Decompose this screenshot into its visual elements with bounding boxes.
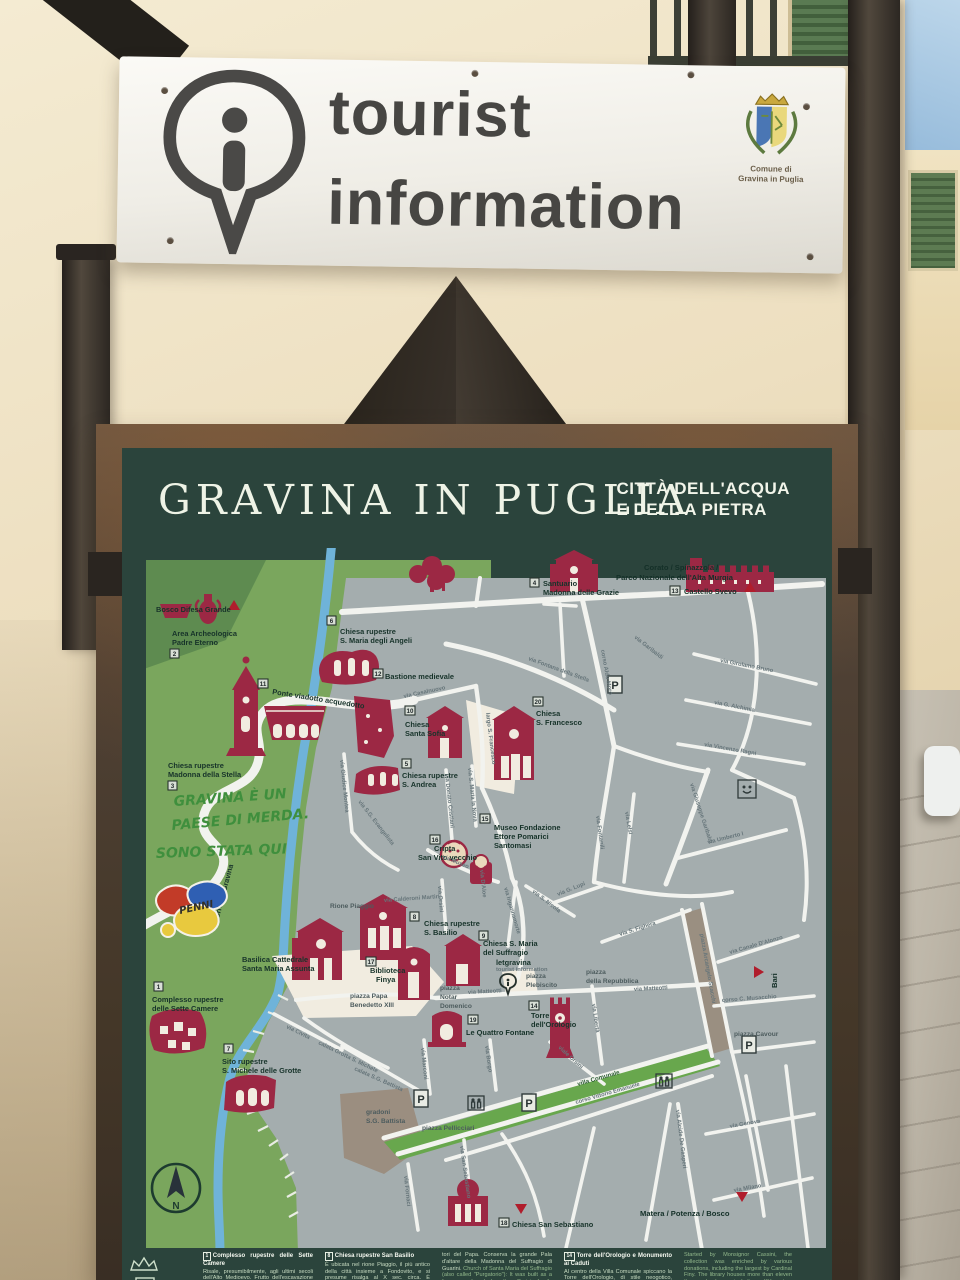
screw xyxy=(803,103,810,110)
legend-col-1: 1Complesso rupestre delle Sette Camere R… xyxy=(203,1252,313,1280)
label-sito-rupestre: Sito rupestre xyxy=(222,1057,268,1066)
info-pin-icon xyxy=(153,67,316,255)
label-sette-camere: Complesso rupestre xyxy=(152,995,223,1004)
label-rione-piaggio: Rione Piaggio xyxy=(330,903,374,910)
label-biblioteca: Biblioteca xyxy=(370,966,406,975)
svg-text:14: 14 xyxy=(531,1003,538,1010)
svg-text:P: P xyxy=(525,1098,532,1110)
san-francesco-church-icon xyxy=(492,706,536,780)
label-madonna-stella-2: Madonna della Stella xyxy=(168,770,242,779)
legend-icons xyxy=(128,1254,170,1280)
label-bastione: Bastione medievale xyxy=(385,672,454,681)
svg-text:5: 5 xyxy=(405,761,409,768)
graffiti: GRAVINA È UN PAESE DI MERDA. SONO STATA … xyxy=(156,785,310,862)
label-notar: piazza xyxy=(440,985,460,992)
sign-line-2: information xyxy=(327,158,686,254)
label-san-basilio: Chiesa rupestre xyxy=(424,919,480,928)
svg-text:15: 15 xyxy=(482,816,489,823)
parking-icon: P xyxy=(742,1036,756,1053)
green-shutter-door xyxy=(788,0,850,60)
sticker: PENNI xyxy=(156,881,227,937)
svg-text:4: 4 xyxy=(533,580,537,587)
map-title: GRAVINA IN PUGLIA xyxy=(158,476,691,524)
label-repubblica: piazza xyxy=(586,969,606,976)
svg-text:P: P xyxy=(745,1040,752,1052)
label-bari: Bari xyxy=(770,973,779,988)
svg-text:2: 2 xyxy=(173,651,177,658)
screw xyxy=(167,237,174,244)
svg-text:10: 10 xyxy=(407,708,414,715)
svg-text:18: 18 xyxy=(501,1220,508,1227)
san-michele-cave-icon xyxy=(224,1075,276,1113)
label-gradoni-2: S.G. Battista xyxy=(366,1118,406,1125)
svg-text:8: 8 xyxy=(413,914,417,921)
label-angeli: Chiesa rupestre xyxy=(340,627,396,636)
svg-text:20: 20 xyxy=(535,699,542,706)
sign-line-1: tourist xyxy=(328,68,687,164)
screw xyxy=(807,253,814,260)
svg-text:17: 17 xyxy=(368,959,375,966)
svg-text:11: 11 xyxy=(260,681,267,688)
svg-text:7: 7 xyxy=(227,1046,231,1053)
label-sette-camere-2: delle Sette Camere xyxy=(152,1004,218,1013)
board-bracket xyxy=(88,552,122,596)
quattro-fontane-icon xyxy=(428,1011,466,1047)
label-plebiscito: piazza xyxy=(526,973,546,980)
svg-text:12: 12 xyxy=(375,671,382,678)
label-santa-sofia: Chiesa xyxy=(405,720,430,729)
screw xyxy=(471,70,478,77)
label-santuario-2: Madonna delle Grazie xyxy=(543,588,619,597)
label-corato-2: Parco Nazionale dell'Alta Murgia xyxy=(616,573,734,582)
label-torre: Torre xyxy=(531,1011,549,1020)
label-torre-2: dell'Orologio xyxy=(531,1020,577,1029)
label-suffragio: Chiesa S. Maria xyxy=(483,939,539,948)
angeli-cave-icon xyxy=(319,650,379,685)
city-map: P P P P N 1 2 3 4 5 6 7 8 9 10 11 12 13 … xyxy=(146,548,826,1248)
label-matera: Matera / Potenza / Bosco xyxy=(640,1209,730,1218)
label-santuario: Santuario xyxy=(543,579,578,588)
label-basilica-2: Santa Maria Assunta xyxy=(242,964,315,973)
map-board-panel: GRAVINA IN PUGLIA CITTÀ DELL'ACQUAE DELL… xyxy=(122,448,832,1280)
label-plebiscito-2: Plebiscito xyxy=(526,982,557,989)
compass-north-label: N xyxy=(172,1201,179,1212)
sette-camere-cave-icon xyxy=(149,1009,206,1054)
label-biblioteca-2: Finya xyxy=(376,975,396,984)
label-museo: Museo Fondazione xyxy=(494,823,561,832)
tourist-information-sign: tourist information Comune diGravina in … xyxy=(116,56,845,273)
label-pellicciari: piazza Pellicciari xyxy=(422,1125,475,1132)
label-sito-rupestre-2: S. Michele delle Grotte xyxy=(222,1066,301,1075)
board-bracket xyxy=(838,548,872,594)
label-area-archeologica-2: Padre Eterno xyxy=(172,638,218,647)
legend-col-4: 14Torre dell'Orologio e Monumento ai Cad… xyxy=(564,1252,672,1280)
screw xyxy=(687,71,694,78)
label-area-archeologica: Area Archeologica xyxy=(172,629,238,638)
label-castello: Castello Svevo xyxy=(684,587,737,596)
parked-car xyxy=(924,746,960,816)
label-san-francesco: Chiesa xyxy=(536,709,561,718)
label-piazza-papa: piazza Papa xyxy=(350,993,388,1000)
label-museo-3: Santomasi xyxy=(494,841,531,850)
svg-text:13: 13 xyxy=(672,588,679,595)
svg-text:P: P xyxy=(417,1094,424,1106)
legend-col-3: tori del Papa. Conserva la grande Pala d… xyxy=(442,1252,552,1280)
label-cripta: Cripta xyxy=(434,844,456,853)
coat-of-arms-caption: Comune diGravina in Puglia xyxy=(716,164,826,186)
label-angeli-2: S. Maria degli Angeli xyxy=(340,636,412,645)
screw xyxy=(161,87,168,94)
label-notar-3: Domenico xyxy=(440,1003,472,1010)
crown-wall-icon xyxy=(131,1258,157,1270)
svg-text:1: 1 xyxy=(157,984,161,991)
legend-col-2: 8Chiesa rupestre San Basilio È ubicata n… xyxy=(325,1252,430,1280)
label-piazza-papa-2: Benedetto XIII xyxy=(350,1002,394,1009)
label-san-francesco-2: S. Francesco xyxy=(536,718,582,727)
svg-text:6: 6 xyxy=(330,618,334,625)
parking-icon: P xyxy=(414,1090,428,1107)
label-bosco: Bosco Difesa Grande xyxy=(156,605,231,614)
label-basilica: Basilica Cattedrale xyxy=(242,955,308,964)
label-madonna-stella: Chiesa rupestre xyxy=(168,761,224,770)
sign-post-top xyxy=(688,0,736,66)
label-museo-2: Ettore Pomarici xyxy=(494,832,549,841)
svg-text:16: 16 xyxy=(432,837,439,844)
label-san-basilio-2: S. Basilio xyxy=(424,928,458,937)
aqueduct-icon xyxy=(264,706,326,740)
label-repubblica-2: della Repubblica xyxy=(586,978,639,985)
parking-icon: P xyxy=(522,1094,536,1111)
map-legend: 1Complesso rupestre delle Sette Camere R… xyxy=(122,1248,832,1280)
svg-text:19: 19 xyxy=(470,1017,477,1024)
label-cavour: piazza Cavour xyxy=(734,1031,779,1038)
label-corato: Corato / Spinazzola / xyxy=(644,563,719,572)
label-infopoint: letgravina xyxy=(496,958,532,967)
label-gradoni: gradoni xyxy=(366,1109,390,1116)
label-notar-2: Notar xyxy=(440,994,458,1001)
coat-of-arms xyxy=(736,90,807,165)
label-quattro-fontane: Le Quattro Fontane xyxy=(466,1028,534,1037)
label-suffragio-2: del Suffragio xyxy=(483,948,529,957)
green-shuttered-window xyxy=(908,170,958,271)
map-subtitle: CITTÀ DELL'ACQUAE DELL A PIETRA xyxy=(616,478,790,520)
label-santa-sofia-2: Santa Sofia xyxy=(405,729,446,738)
label-san-sebastiano: Chiesa San Sebastiano xyxy=(512,1220,594,1229)
svg-text:3: 3 xyxy=(171,783,175,790)
legend-col-5: Started by Monsignor Cassini, the collec… xyxy=(684,1252,792,1280)
map-board: GRAVINA IN PUGLIA CITTÀ DELL'ACQUAE DELL… xyxy=(96,424,858,1280)
label-sant-andrea-2: S. Andrea xyxy=(402,780,437,789)
